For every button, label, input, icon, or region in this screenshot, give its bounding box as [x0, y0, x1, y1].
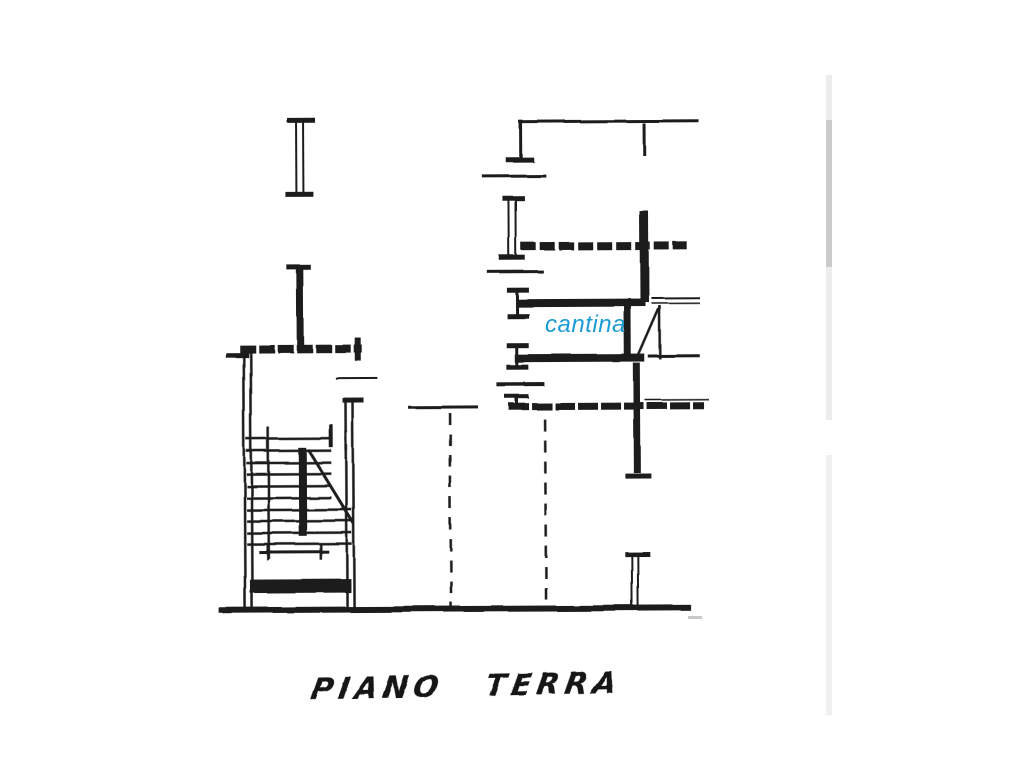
wall: [521, 246, 687, 247]
scan-artifact-strip: [826, 455, 832, 715]
wall: [240, 349, 362, 350]
wall: [515, 358, 645, 359]
wall: [509, 406, 704, 407]
scan-artifacts: [688, 75, 832, 715]
cantina-room-label: cantina: [545, 311, 626, 339]
wall: [637, 363, 638, 473]
wall: [517, 302, 645, 303]
wall-line: [519, 121, 699, 122]
wall-line: [251, 346, 252, 611]
scan-artifact-strip: [826, 120, 832, 267]
dashed-boundary: [450, 413, 451, 608]
floorplan-drawing: [0, 0, 1024, 768]
floorplan-walls: [217, 118, 711, 612]
stair-step: [247, 544, 352, 545]
stair-stringer: [268, 427, 269, 559]
dashed-boundary: [545, 420, 546, 608]
wall-line: [353, 402, 354, 611]
wall-line: [244, 346, 245, 611]
scanned-floorplan-page: cantina PIANO TERRA: [0, 0, 1024, 768]
floor-title-label: PIANO TERRA: [309, 666, 624, 707]
door-leaf: [637, 307, 660, 359]
ground-line: [219, 608, 691, 610]
scan-artifact-mark: [688, 616, 702, 619]
threshold-bar: [250, 586, 351, 587]
